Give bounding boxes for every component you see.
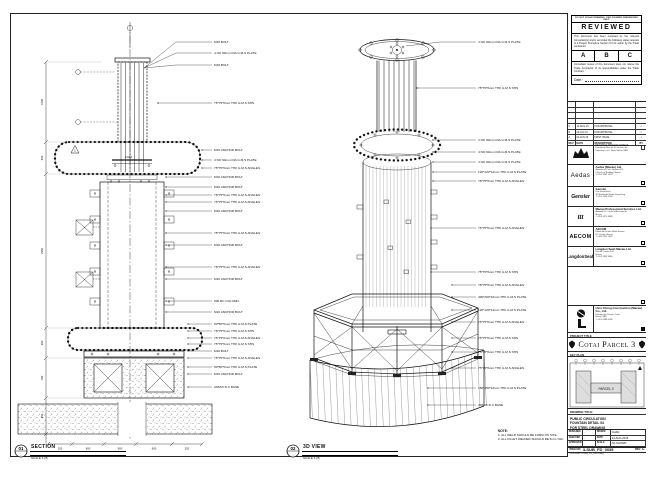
cad-label: CAD FILE: (570, 453, 581, 455)
callout-label: 75*75*6mm THK G.M.S ANGLES (214, 356, 260, 360)
keyplan-drawing: PARCEL 3 (568, 357, 646, 409)
callout-label: 75*75*6mm THK G.M.S ANGLES (214, 200, 260, 204)
consultant-row-ttt: tttMacau Professional Services Ltd.Alame… (568, 207, 646, 227)
ttt-logo: ttt (578, 213, 584, 221)
callout-label: 75*75*6mm THK G.M.S SHS (214, 101, 254, 105)
info-grid: DESIGNED - DRAWN CHAD CHECKED - DATE 14-… (568, 430, 646, 448)
dim-label: 1200 (40, 99, 44, 105)
callout-label: ADMIX R.C BASE (478, 403, 503, 407)
crest-left-icon (569, 340, 575, 349)
callout-label: 75*75*6mm THK G.M.S ANGLES (214, 265, 260, 269)
venetian-lion-icon (571, 147, 591, 160)
callout-label: 75*75*6mm THK G.M.S SHS (214, 329, 254, 333)
stamp-option-c[interactable]: C (619, 51, 641, 61)
svg-text:-: - (20, 453, 21, 457)
callout-label: 50*50*5mm THK G.M.S PLATE (214, 322, 257, 326)
consultant-checkbox[interactable] (641, 181, 645, 185)
section-view-scale: SCALE 1:25 (31, 456, 48, 460)
date-label: Date : (574, 78, 583, 82)
callout-label: 75*75*6mm THK G.M.S SHS (214, 342, 254, 346)
contractor-name: Hsin Chong Construction (Macau) Co., Ltd… (596, 307, 645, 314)
callout-label: 4 NO 90mm DIA G.M.S PLATE (478, 40, 521, 44)
aedas-logo: Aedas (571, 173, 591, 179)
contractor-badge-icon (573, 309, 589, 329)
callout-label: M16 BOLT (214, 63, 229, 67)
callout-label: 4 NO 90mm DIA G.M.S PLATE (214, 51, 257, 55)
stamp-date-field[interactable]: Date : (572, 75, 641, 85)
iso-bubble: 02 - (286, 444, 300, 458)
stamp-options: ABC (572, 50, 641, 62)
section-view-drawing: 12004502350300700450250600900600250 M16 … (12, 14, 292, 454)
callout-label: 50*50*5mm THK G.M.S PLATE (214, 365, 257, 369)
callout-label: M16 ANCHOR BOLT (214, 277, 243, 281)
cloud-tag: 2-M-2 (125, 155, 133, 159)
stamp-option-b[interactable]: B (595, 51, 618, 61)
gensler-logo: Gensler (571, 194, 590, 200)
iso-view-drawing: 4 NO 90mm DIA G.M.S PLATE75*75*6mm THK G… (300, 14, 565, 454)
section-bubble: 01 - (14, 444, 28, 458)
client-block: Venetian Orient Limited Estrada da Baía … (568, 143, 646, 165)
crest-right-icon (639, 340, 645, 349)
section-view-title: 01 - SECTION SCALE 1:25 (14, 444, 144, 460)
callout-label: 4 NO 90mm DIA G.M.S PLATE (214, 158, 257, 162)
dim-label: 300 (40, 340, 44, 345)
callout-label: 75*75*6mm THK G.M.S SHS (478, 86, 518, 90)
consultant-checkbox[interactable] (641, 221, 645, 225)
consultant-checkbox[interactable] (641, 201, 645, 205)
callout-label: M16 ANCHOR BOLT (214, 175, 243, 179)
note-line: 2. ALL FILLET WELDED SHOULD BE 6mm THK. (498, 438, 564, 442)
callout-label: 4 NO 90mm DIA G.M.S PLATE (478, 150, 521, 154)
callout-label: 600 RC COLUMN (214, 299, 239, 303)
callout-label: 75*75*6mm THK G.M.S ANGLES (478, 226, 524, 230)
callout-label: 75*75*6mm THK G.M.S ANGLES (214, 231, 260, 235)
callout-label: 75*75*6mm THK G.M.S SHS (478, 270, 518, 274)
notes-block: NOTE: 1. ALL WELD SHOULD BE FORM ON SITE… (498, 430, 564, 442)
aecom-logo: AECOM (570, 234, 592, 240)
callout-label: 75*75*6mm THK G.M.S ANGLES (478, 320, 524, 324)
dwg-number: 3-SUB_FD_0035 (583, 447, 614, 452)
callout-label: 75*75*6mm THK G.M.S SHS (478, 350, 518, 354)
callout-label: M16 ANCHOR BOLT (214, 243, 243, 247)
svg-text:-: - (292, 453, 293, 457)
dim-label: 700 (40, 375, 44, 380)
consultant-checkbox[interactable] (641, 261, 645, 265)
iso-view-title: 02 - 3D VIEW SCALE 1:25 (286, 444, 416, 460)
dim-label: 450 (40, 413, 44, 418)
stamp-header: DO NOT SCALE DRAWING. USE FIGURED DIMENS… (572, 16, 641, 23)
project-name-band: Cotai Parcel 3 (568, 338, 646, 352)
langdonseah-logo: LangdonSeah (568, 254, 594, 259)
dim-label: 2350 (40, 248, 44, 254)
address-line: T +853 2888 6188 (596, 319, 645, 322)
stamp-paragraph-1: This document has been reviewed by the r… (572, 34, 641, 50)
consultant-checkbox[interactable] (641, 241, 645, 245)
contractor-checkbox[interactable] (641, 327, 645, 331)
dim-label: 250 (185, 447, 190, 451)
stamp-option-a[interactable]: A (572, 51, 595, 61)
callout-label: 75*75*6mm THK G.M.S SHS (478, 336, 518, 340)
revision-table: C14-AUG-15FOR APPROVAL✓B20-JUL-15FOR APP… (568, 101, 646, 146)
callout-label: M16 ANCHOR BOLT (214, 209, 243, 213)
callout-label: 75*75*6mm THK G.M.S ANGLES (214, 336, 260, 340)
consultant-row-aedas: AedasAedas (Macau) Ltd.Avenida da Praia … (568, 165, 646, 187)
callout-label: M16 ANCHOR BOLT (214, 185, 243, 189)
consultant-row-gensler: GenslerGenslerOne Island East,18 Westlan… (568, 187, 646, 207)
callout-label: M16 ANCHOR BOLT (214, 310, 243, 314)
reviewed-stamp: DO NOT SCALE DRAWING. USE FIGURED DIMENS… (571, 15, 642, 85)
dim-label: 600 (152, 447, 157, 451)
cad-file-row: CAD FILE: 3-SUB_FD_0035.dwg (568, 453, 646, 456)
keyplan: PARCEL 3 (568, 357, 646, 409)
approval-checkbox[interactable] (641, 300, 645, 304)
iso-view-scale: SCALE 1:25 (303, 456, 320, 460)
section-view-name: SECTION (31, 444, 55, 450)
cad-file-value: 3-SUB_FD_0035.dwg (581, 453, 603, 455)
callout-label: 75*75*6mm THK G.M.S ANGLES (214, 166, 260, 170)
address-line: Esperança, s/n, Taipa, Macau SAR (596, 150, 645, 153)
drawing-title-block: DRAWING TITLE: PUBLIC CIRCULATIONFOUNTAI… (568, 409, 646, 430)
project-name: Cotai Parcel 3 (578, 340, 635, 349)
callout-label: 75*75*6mm THK G.M.S ANGLES (478, 366, 524, 370)
svg-text:02: 02 (291, 446, 296, 451)
dwg-label: DWG NO: (570, 448, 582, 451)
document-icon (641, 145, 645, 150)
callout-label: 4 NO 90mm DIA G.M.S PLATE (478, 160, 521, 164)
dim-label: 450 (40, 155, 44, 160)
consultant-row-langdonseah: LangdonSeahLangdon Seah Macau Ltd.Rua do… (568, 247, 646, 267)
contractor-logo (568, 306, 594, 332)
callout-label: ADMIX R.C BASE (214, 385, 239, 389)
empty-consultant-box (568, 267, 646, 306)
rev-label: REV: (635, 448, 641, 451)
rev-value: C (642, 447, 645, 451)
client-logo (568, 143, 594, 164)
reviewed-label: REVIEWED (572, 23, 641, 34)
consultant-row-aecom: AECOMAECOM8 Avenida Doutor Mário Soares,… (568, 227, 646, 247)
callout-label: 150*150*16mm THK G.M.S PLATE (478, 386, 526, 390)
callout-label: 120*120*12mm THK G.M.S PLATE (478, 308, 526, 312)
iso-view-name: 3D VIEW (303, 444, 326, 450)
svg-text:01: 01 (19, 446, 24, 451)
callout-label: 120*120*12mm THK G.M.S PLATE (478, 170, 526, 174)
callout-label: M16 ANCHOR BOLT (214, 372, 243, 376)
callout-label: 400*200*16mm THK G.M.S PLATE (478, 295, 526, 299)
callout-label: 4 NO 90mm DIA G.M.S PLATE (478, 138, 521, 142)
title-block: DO NOT SCALE DRAWING. USE FIGURED DIMENS… (567, 13, 645, 457)
keyplan-note: PARCEL 3 (598, 387, 613, 391)
callout-label: 75*75*6mm THK G.M.S ANGLES (214, 193, 260, 197)
drawing-sheet-page: 12004502350300700450250600900600250 M16 … (0, 0, 650, 488)
contractor-block: Hsin Chong Construction (Macau) Co., Ltd… (568, 306, 646, 333)
stamp-paragraph-2: Consultant review of this document does … (572, 62, 641, 75)
callout-label: M16 BOLT (214, 349, 229, 353)
callout-label: M16 ANCHOR BOLT (214, 148, 243, 152)
callout-label: 75*75*6mm THK G.M.S ANGLES (478, 179, 524, 183)
callout-label: 75*75*6mm THK G.M.S ANGLES (478, 283, 524, 287)
callout-label: M16 BOLT (214, 40, 229, 44)
